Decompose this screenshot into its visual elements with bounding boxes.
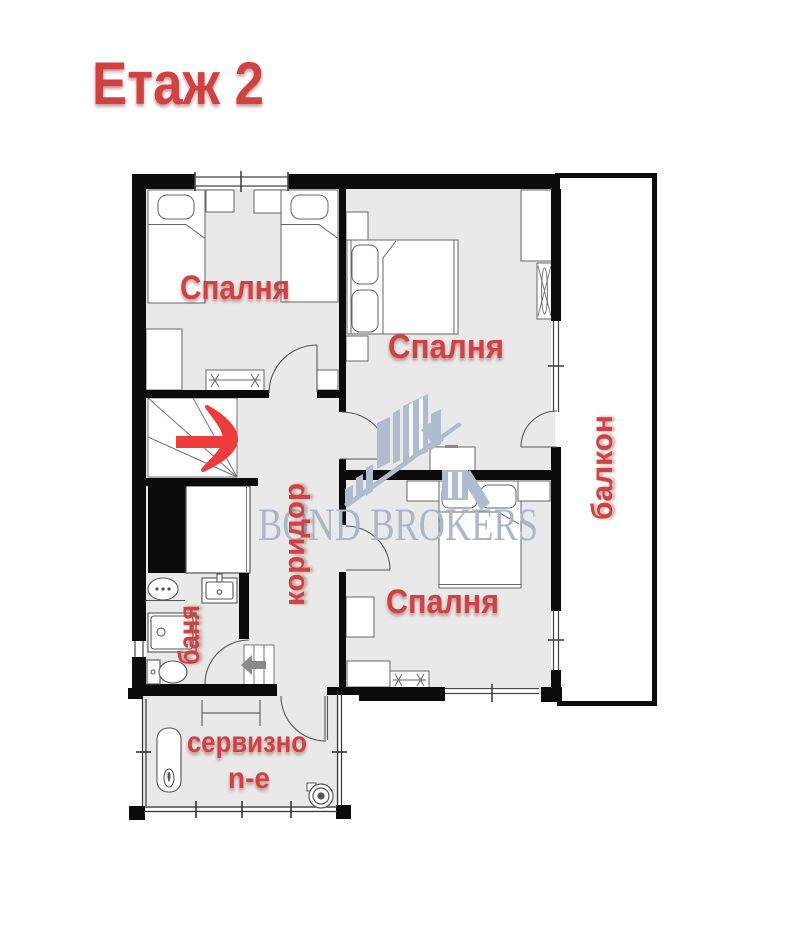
svg-text:Спалня: Спалня	[180, 269, 290, 307]
svg-text:баня: баня	[173, 605, 206, 665]
svg-text:коридор: коридор	[279, 483, 311, 606]
svg-text:сервизно: сервизно	[187, 726, 307, 759]
svg-text:Етаж 2: Етаж 2	[92, 50, 264, 117]
svg-text:n-е: n-е	[228, 762, 270, 795]
svg-text:Спалня: Спалня	[386, 583, 499, 621]
svg-text:Спалня: Спалня	[388, 328, 504, 366]
svg-text:балкон: балкон	[586, 415, 619, 520]
